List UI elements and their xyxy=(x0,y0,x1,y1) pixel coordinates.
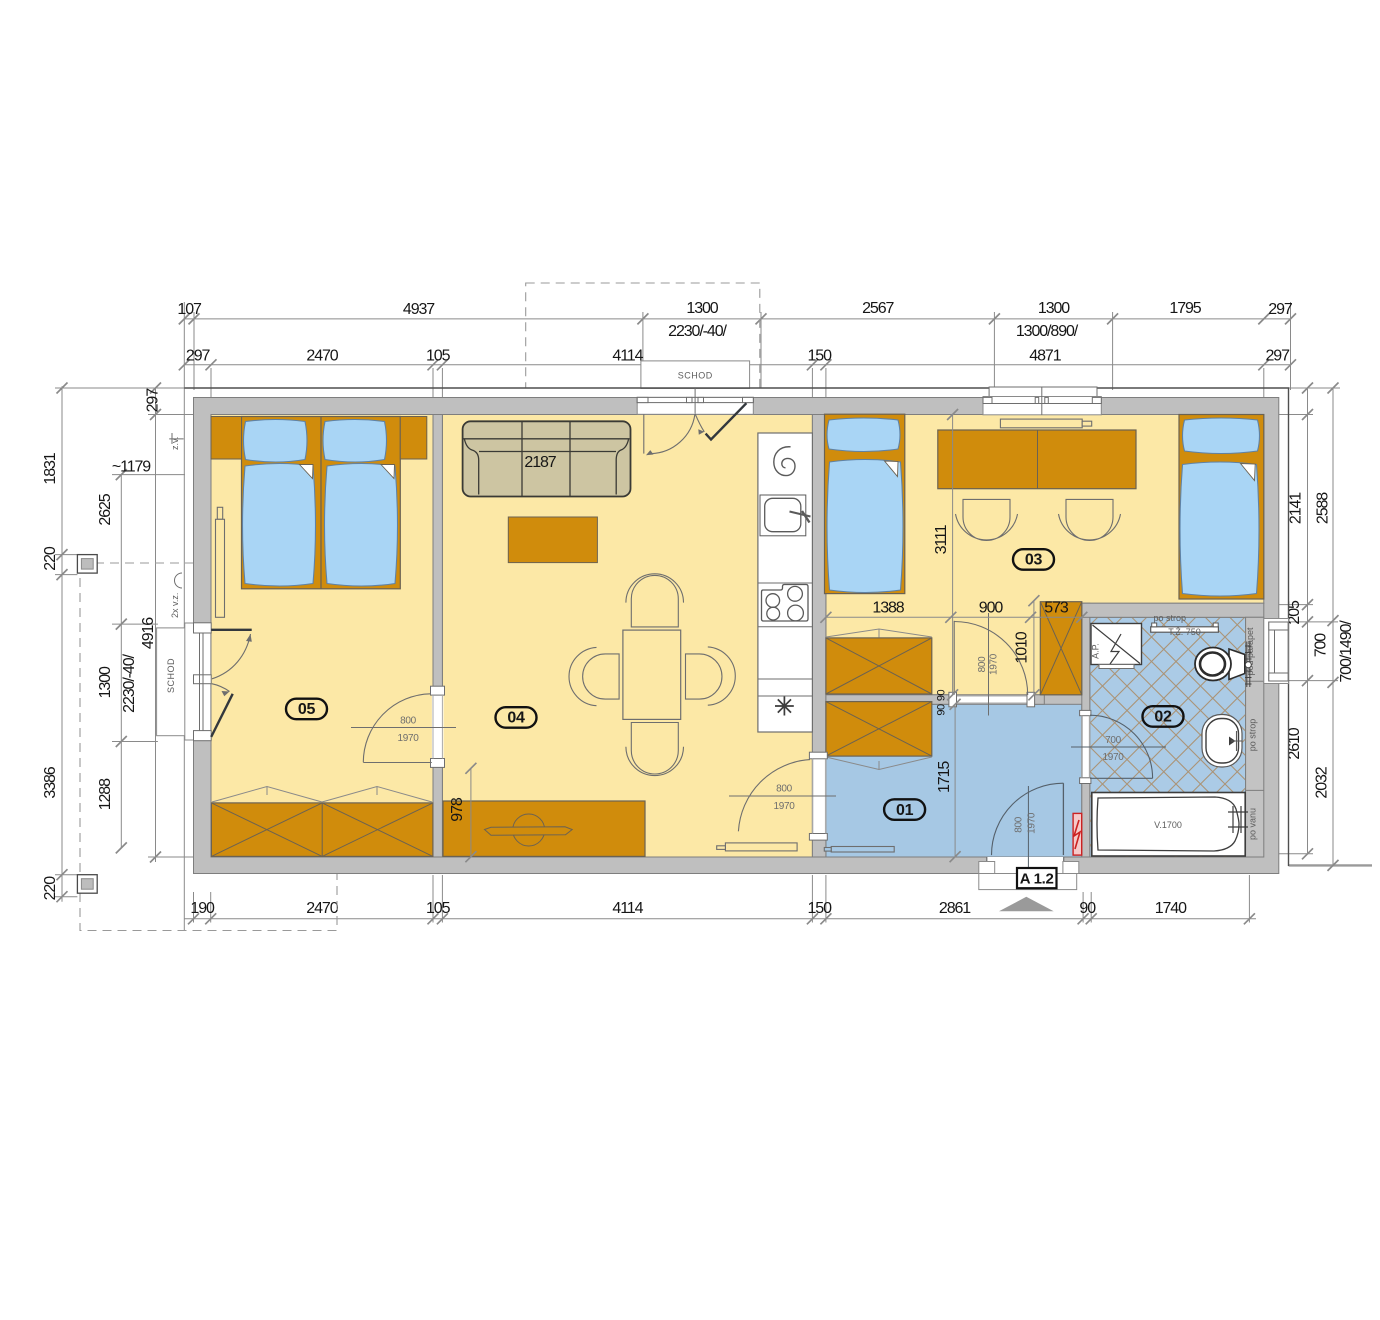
svg-text:2861: 2861 xyxy=(939,900,971,917)
svg-text:03: 03 xyxy=(1025,552,1043,569)
svg-text:90: 90 xyxy=(1079,900,1096,917)
svg-text:02: 02 xyxy=(1154,709,1172,726)
svg-text:SCHOD: SCHOD xyxy=(166,658,176,693)
svg-text:2141: 2141 xyxy=(1288,492,1305,524)
svg-text:1970: 1970 xyxy=(773,801,795,812)
svg-text:220: 220 xyxy=(42,876,59,901)
svg-text:A.P.: A.P. xyxy=(1091,643,1101,659)
svg-text:978: 978 xyxy=(449,797,466,822)
svg-text:800: 800 xyxy=(776,784,793,795)
svg-text:A 1.2: A 1.2 xyxy=(1020,871,1054,888)
svg-text:4114: 4114 xyxy=(612,348,643,365)
svg-text:1970: 1970 xyxy=(397,733,419,744)
svg-text:04: 04 xyxy=(507,710,525,727)
svg-text:3111: 3111 xyxy=(933,524,950,554)
svg-text:2470: 2470 xyxy=(306,348,338,365)
svg-text:1300: 1300 xyxy=(97,666,114,698)
svg-text:2567: 2567 xyxy=(862,300,894,317)
svg-text:4871: 4871 xyxy=(1029,348,1061,365)
svg-text:190: 190 xyxy=(190,900,215,917)
svg-text:po strop: po strop xyxy=(1154,613,1187,623)
svg-text:700: 700 xyxy=(1313,633,1330,658)
svg-text:297: 297 xyxy=(1265,348,1290,365)
svg-text:800: 800 xyxy=(400,716,417,727)
svg-text:107: 107 xyxy=(177,301,202,318)
svg-text:po vanu: po vanu xyxy=(1248,808,1258,840)
svg-text:1831: 1831 xyxy=(42,452,59,484)
svg-text:2470: 2470 xyxy=(306,900,338,917)
svg-text:~1179: ~1179 xyxy=(112,459,151,476)
svg-text:2x v.z.: 2x v.z. xyxy=(170,593,180,618)
svg-text:700/1490/: 700/1490/ xyxy=(1338,620,1355,683)
svg-text:1795: 1795 xyxy=(1169,300,1201,317)
svg-text:700: 700 xyxy=(1105,735,1122,746)
svg-text:1010: 1010 xyxy=(1014,631,1031,663)
svg-text:2032: 2032 xyxy=(1314,766,1331,798)
svg-text:1970: 1970 xyxy=(1102,752,1124,763)
svg-text:1715: 1715 xyxy=(936,761,953,793)
svg-text:297: 297 xyxy=(186,348,211,365)
svg-text:po strop: po strop xyxy=(1248,719,1258,752)
svg-text:4937: 4937 xyxy=(403,301,435,318)
svg-text:2625: 2625 xyxy=(97,493,114,525)
svg-text:05: 05 xyxy=(298,701,316,718)
svg-text:1300/890/: 1300/890/ xyxy=(1016,323,1079,340)
svg-text:150: 150 xyxy=(807,900,832,917)
svg-text:01: 01 xyxy=(896,802,914,819)
svg-text:2230/-40/: 2230/-40/ xyxy=(668,323,727,340)
svg-text:V.1700: V.1700 xyxy=(1154,820,1182,830)
svg-text:2230/-40/: 2230/-40/ xyxy=(121,653,138,712)
svg-text:800: 800 xyxy=(977,656,988,673)
svg-text:2187: 2187 xyxy=(524,454,556,471)
svg-text:2588: 2588 xyxy=(1315,492,1332,524)
svg-text:90: 90 xyxy=(936,704,948,716)
svg-text:4916: 4916 xyxy=(140,617,157,649)
svg-text:1970: 1970 xyxy=(1027,812,1038,834)
svg-text:297: 297 xyxy=(145,388,162,413)
svg-text:105: 105 xyxy=(426,900,451,917)
svg-text:220: 220 xyxy=(42,546,59,571)
svg-text:3386: 3386 xyxy=(42,766,59,798)
svg-text:1740: 1740 xyxy=(1155,900,1187,917)
svg-text:4114: 4114 xyxy=(612,900,643,917)
svg-text:1300: 1300 xyxy=(686,300,718,317)
svg-text:150: 150 xyxy=(807,348,832,365)
svg-text:T.Ž. 750: T.Ž. 750 xyxy=(1168,627,1201,637)
svg-text:900: 900 xyxy=(979,600,1004,617)
svg-text:SCHOD: SCHOD xyxy=(678,371,713,381)
svg-text:z.v.: z.v. xyxy=(170,437,180,450)
svg-text:573: 573 xyxy=(1044,600,1069,617)
svg-text:90: 90 xyxy=(936,690,948,702)
svg-text:1970: 1970 xyxy=(989,653,1000,675)
svg-text:1288: 1288 xyxy=(97,778,114,810)
svg-text:1300: 1300 xyxy=(1038,300,1070,317)
svg-text:1388: 1388 xyxy=(872,600,904,617)
svg-text:297: 297 xyxy=(1268,301,1293,318)
svg-text:105: 105 xyxy=(426,348,451,365)
svg-text:800: 800 xyxy=(1014,816,1025,833)
